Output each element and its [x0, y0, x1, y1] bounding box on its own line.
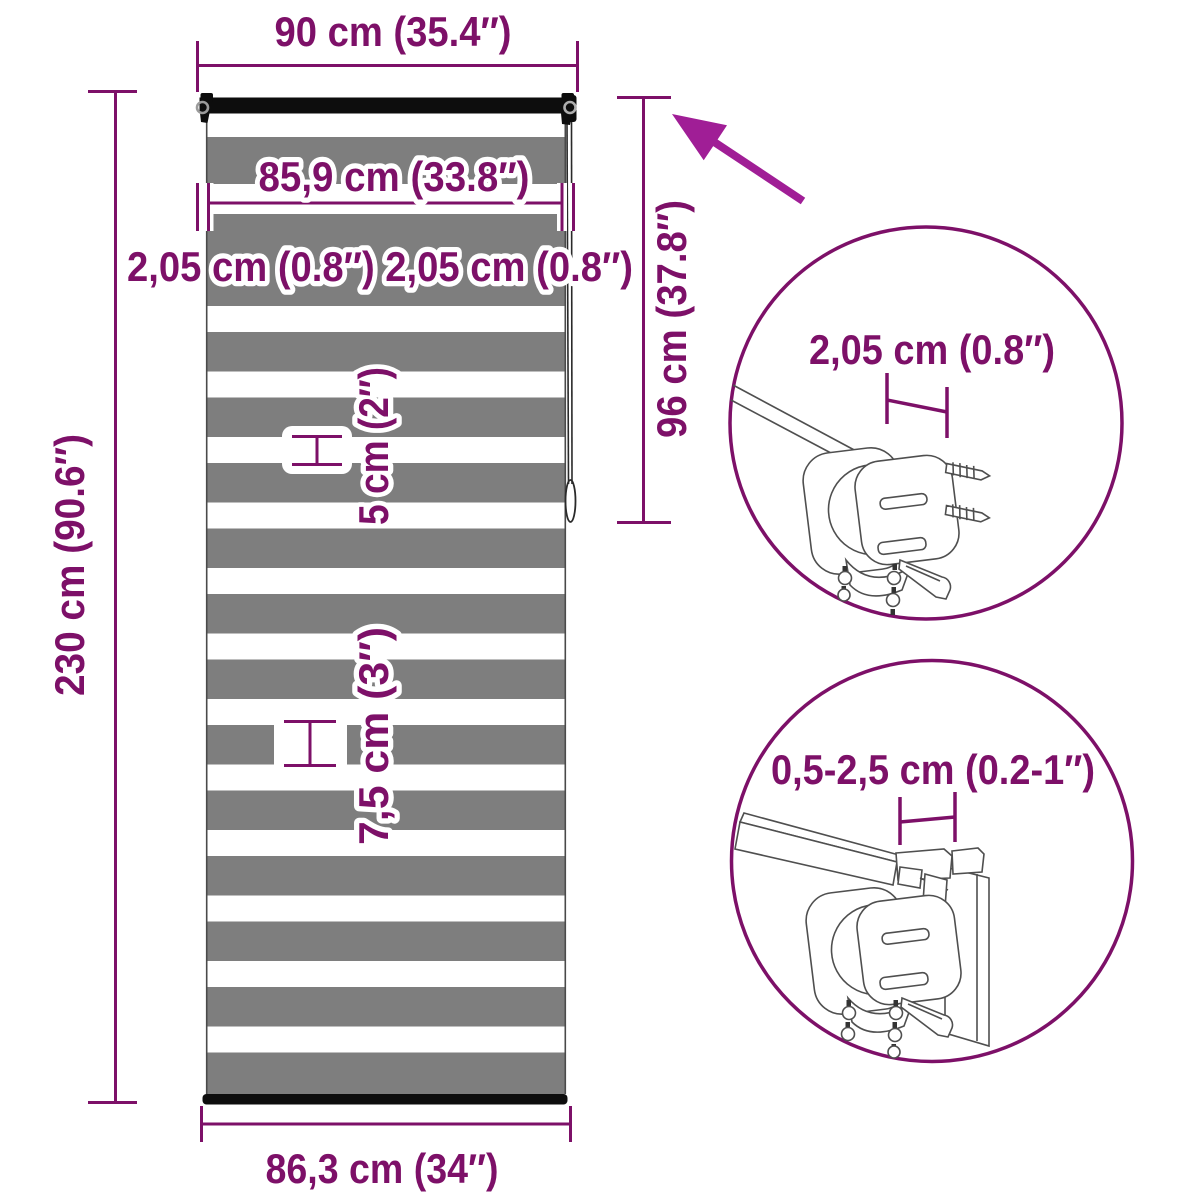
- svg-text:230 cm (90.6″): 230 cm (90.6″): [46, 434, 93, 696]
- svg-text:85,9 cm (33.8″): 85,9 cm (33.8″): [259, 153, 530, 200]
- svg-text:7,5 cm (3″): 7,5 cm (3″): [350, 627, 397, 845]
- svg-text:5 cm (2″): 5 cm (2″): [350, 367, 397, 525]
- svg-text:86,3 cm (34″): 86,3 cm (34″): [266, 1145, 499, 1192]
- svg-text:2,05 cm (0.8″): 2,05 cm (0.8″): [809, 326, 1055, 373]
- svg-text:96 cm (37.8″): 96 cm (37.8″): [648, 200, 695, 438]
- svg-text:2,05 cm (0.8″) 2,05 cm (0.8″): 2,05 cm (0.8″) 2,05 cm (0.8″): [127, 243, 633, 290]
- svg-text:90 cm (35.4″): 90 cm (35.4″): [275, 8, 512, 55]
- svg-text:0,5-2,5 cm (0.2-1″): 0,5-2,5 cm (0.2-1″): [771, 746, 1095, 793]
